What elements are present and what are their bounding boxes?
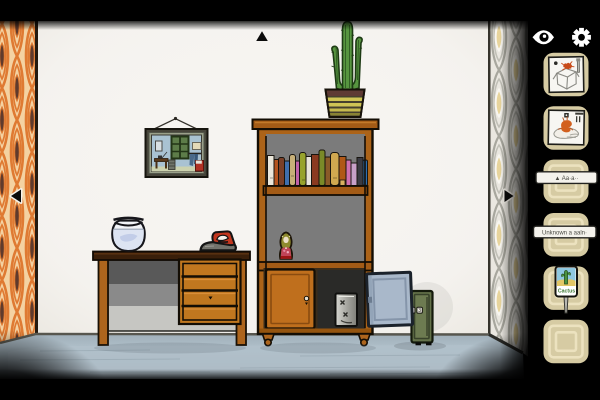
svg-text:▲ Aa·a··: ▲ Aa·a·· xyxy=(555,176,579,182)
svg-text:Cactus: Cactus xyxy=(558,289,575,295)
svg-text:3: 3 xyxy=(418,308,421,314)
svg-text:Unknown a aaln·: Unknown a aaln· xyxy=(542,230,587,236)
